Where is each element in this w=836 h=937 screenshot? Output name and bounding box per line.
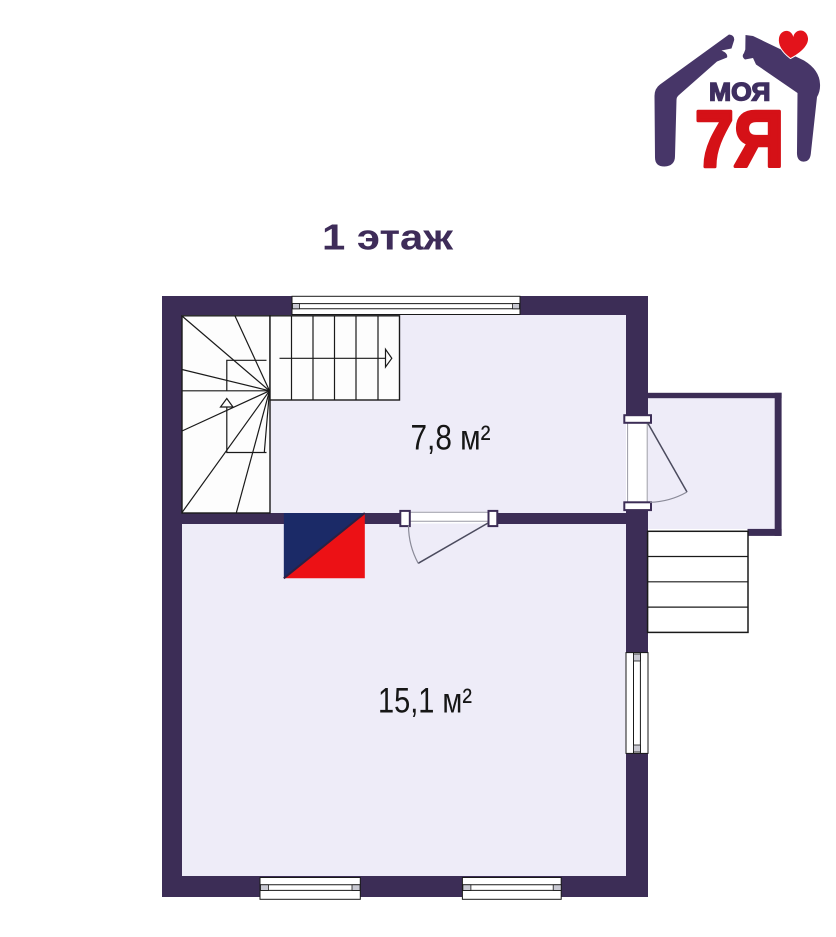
svg-text:1 этаж: 1 этаж bbox=[322, 217, 454, 258]
svg-text:7,8 м²: 7,8 м² bbox=[411, 419, 491, 458]
svg-text:15,1 м²: 15,1 м² bbox=[378, 682, 472, 721]
svg-text:7Я: 7Я bbox=[695, 94, 784, 183]
